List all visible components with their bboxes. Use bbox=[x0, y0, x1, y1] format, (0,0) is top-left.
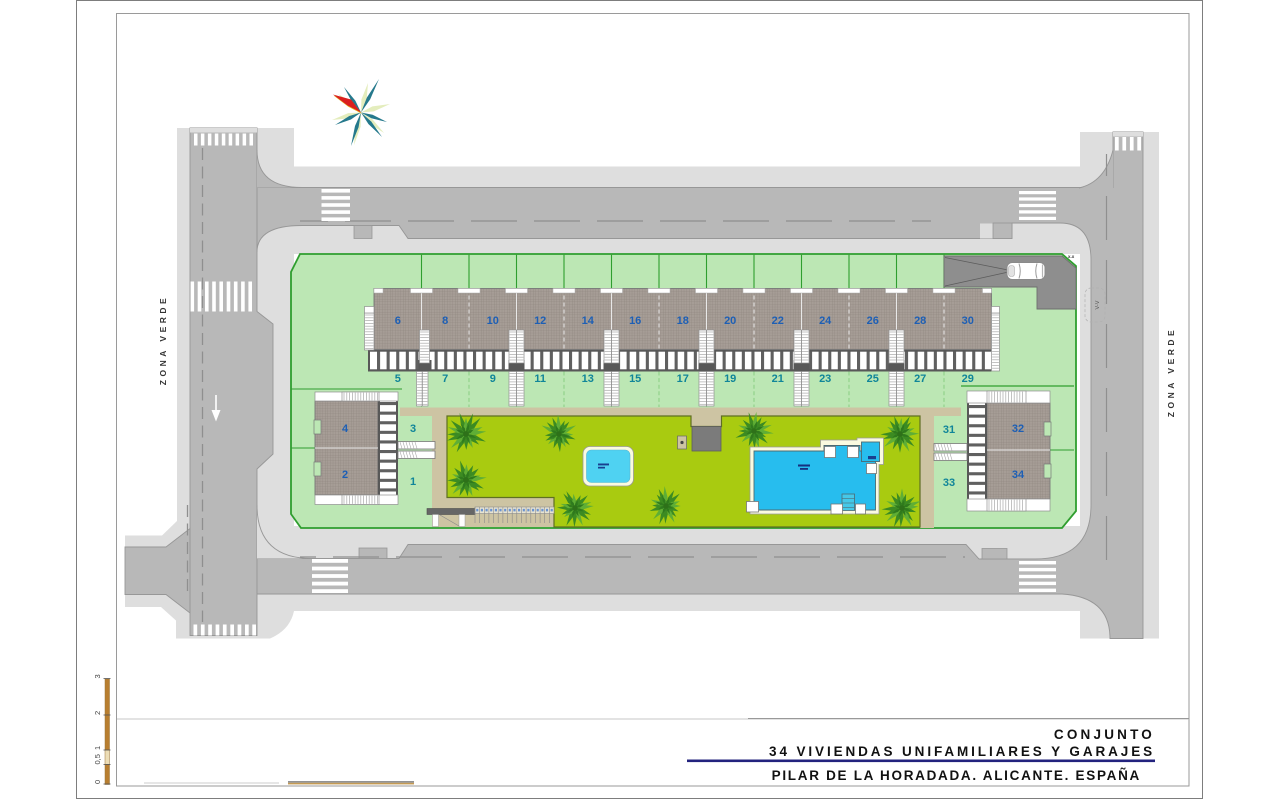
svg-text:14: 14 bbox=[582, 315, 595, 327]
svg-text:x.x: x.x bbox=[1068, 254, 1075, 259]
svg-text:1: 1 bbox=[93, 746, 102, 750]
svg-text:17: 17 bbox=[677, 373, 689, 385]
svg-text:8: 8 bbox=[442, 315, 448, 327]
svg-text:2: 2 bbox=[93, 711, 102, 715]
svg-text:25: 25 bbox=[867, 373, 879, 385]
svg-text:22: 22 bbox=[772, 315, 784, 327]
svg-text:4: 4 bbox=[342, 423, 349, 435]
svg-text:34 VIVIENDAS UNIFAMILIARES Y G: 34 VIVIENDAS UNIFAMILIARES Y GARAJES bbox=[769, 744, 1155, 759]
svg-text:V-V: V-V bbox=[1095, 300, 1101, 309]
svg-text:CONJUNTO: CONJUNTO bbox=[1054, 727, 1155, 742]
svg-text:0: 0 bbox=[93, 780, 102, 784]
svg-text:ZONA VERDE: ZONA VERDE bbox=[1166, 327, 1176, 417]
svg-text:30: 30 bbox=[962, 315, 974, 327]
svg-text:31: 31 bbox=[943, 424, 955, 436]
svg-text:24: 24 bbox=[819, 315, 832, 327]
svg-text:PILAR DE LA HORADADA. ALICANTE: PILAR DE LA HORADADA. ALICANTE. ESPAÑA bbox=[772, 768, 1141, 783]
svg-text:3: 3 bbox=[410, 423, 416, 435]
svg-text:10: 10 bbox=[487, 315, 499, 327]
svg-text:33: 33 bbox=[943, 477, 955, 489]
svg-text:15: 15 bbox=[629, 373, 641, 385]
svg-text:32: 32 bbox=[1012, 423, 1024, 435]
svg-text:0,5: 0,5 bbox=[93, 754, 102, 764]
svg-text:29: 29 bbox=[962, 373, 974, 385]
svg-text:7: 7 bbox=[442, 373, 448, 385]
svg-text:9: 9 bbox=[490, 373, 496, 385]
svg-text:3: 3 bbox=[93, 674, 102, 678]
svg-text:ZONA VERDE: ZONA VERDE bbox=[158, 295, 168, 385]
svg-text:1: 1 bbox=[410, 476, 416, 488]
svg-text:27: 27 bbox=[914, 373, 926, 385]
svg-text:19: 19 bbox=[724, 373, 736, 385]
svg-text:16: 16 bbox=[629, 315, 641, 327]
svg-text:2: 2 bbox=[342, 469, 348, 481]
svg-text:28: 28 bbox=[914, 315, 926, 327]
svg-text:5: 5 bbox=[395, 373, 401, 385]
svg-text:11: 11 bbox=[534, 373, 546, 385]
svg-text:20: 20 bbox=[724, 315, 736, 327]
svg-text:6: 6 bbox=[395, 315, 401, 327]
svg-text:21: 21 bbox=[772, 373, 784, 385]
svg-text:18: 18 bbox=[677, 315, 689, 327]
svg-text:34: 34 bbox=[1012, 469, 1025, 481]
svg-text:26: 26 bbox=[867, 315, 879, 327]
svg-text:13: 13 bbox=[582, 373, 594, 385]
svg-text:23: 23 bbox=[819, 373, 831, 385]
svg-text:12: 12 bbox=[534, 315, 546, 327]
